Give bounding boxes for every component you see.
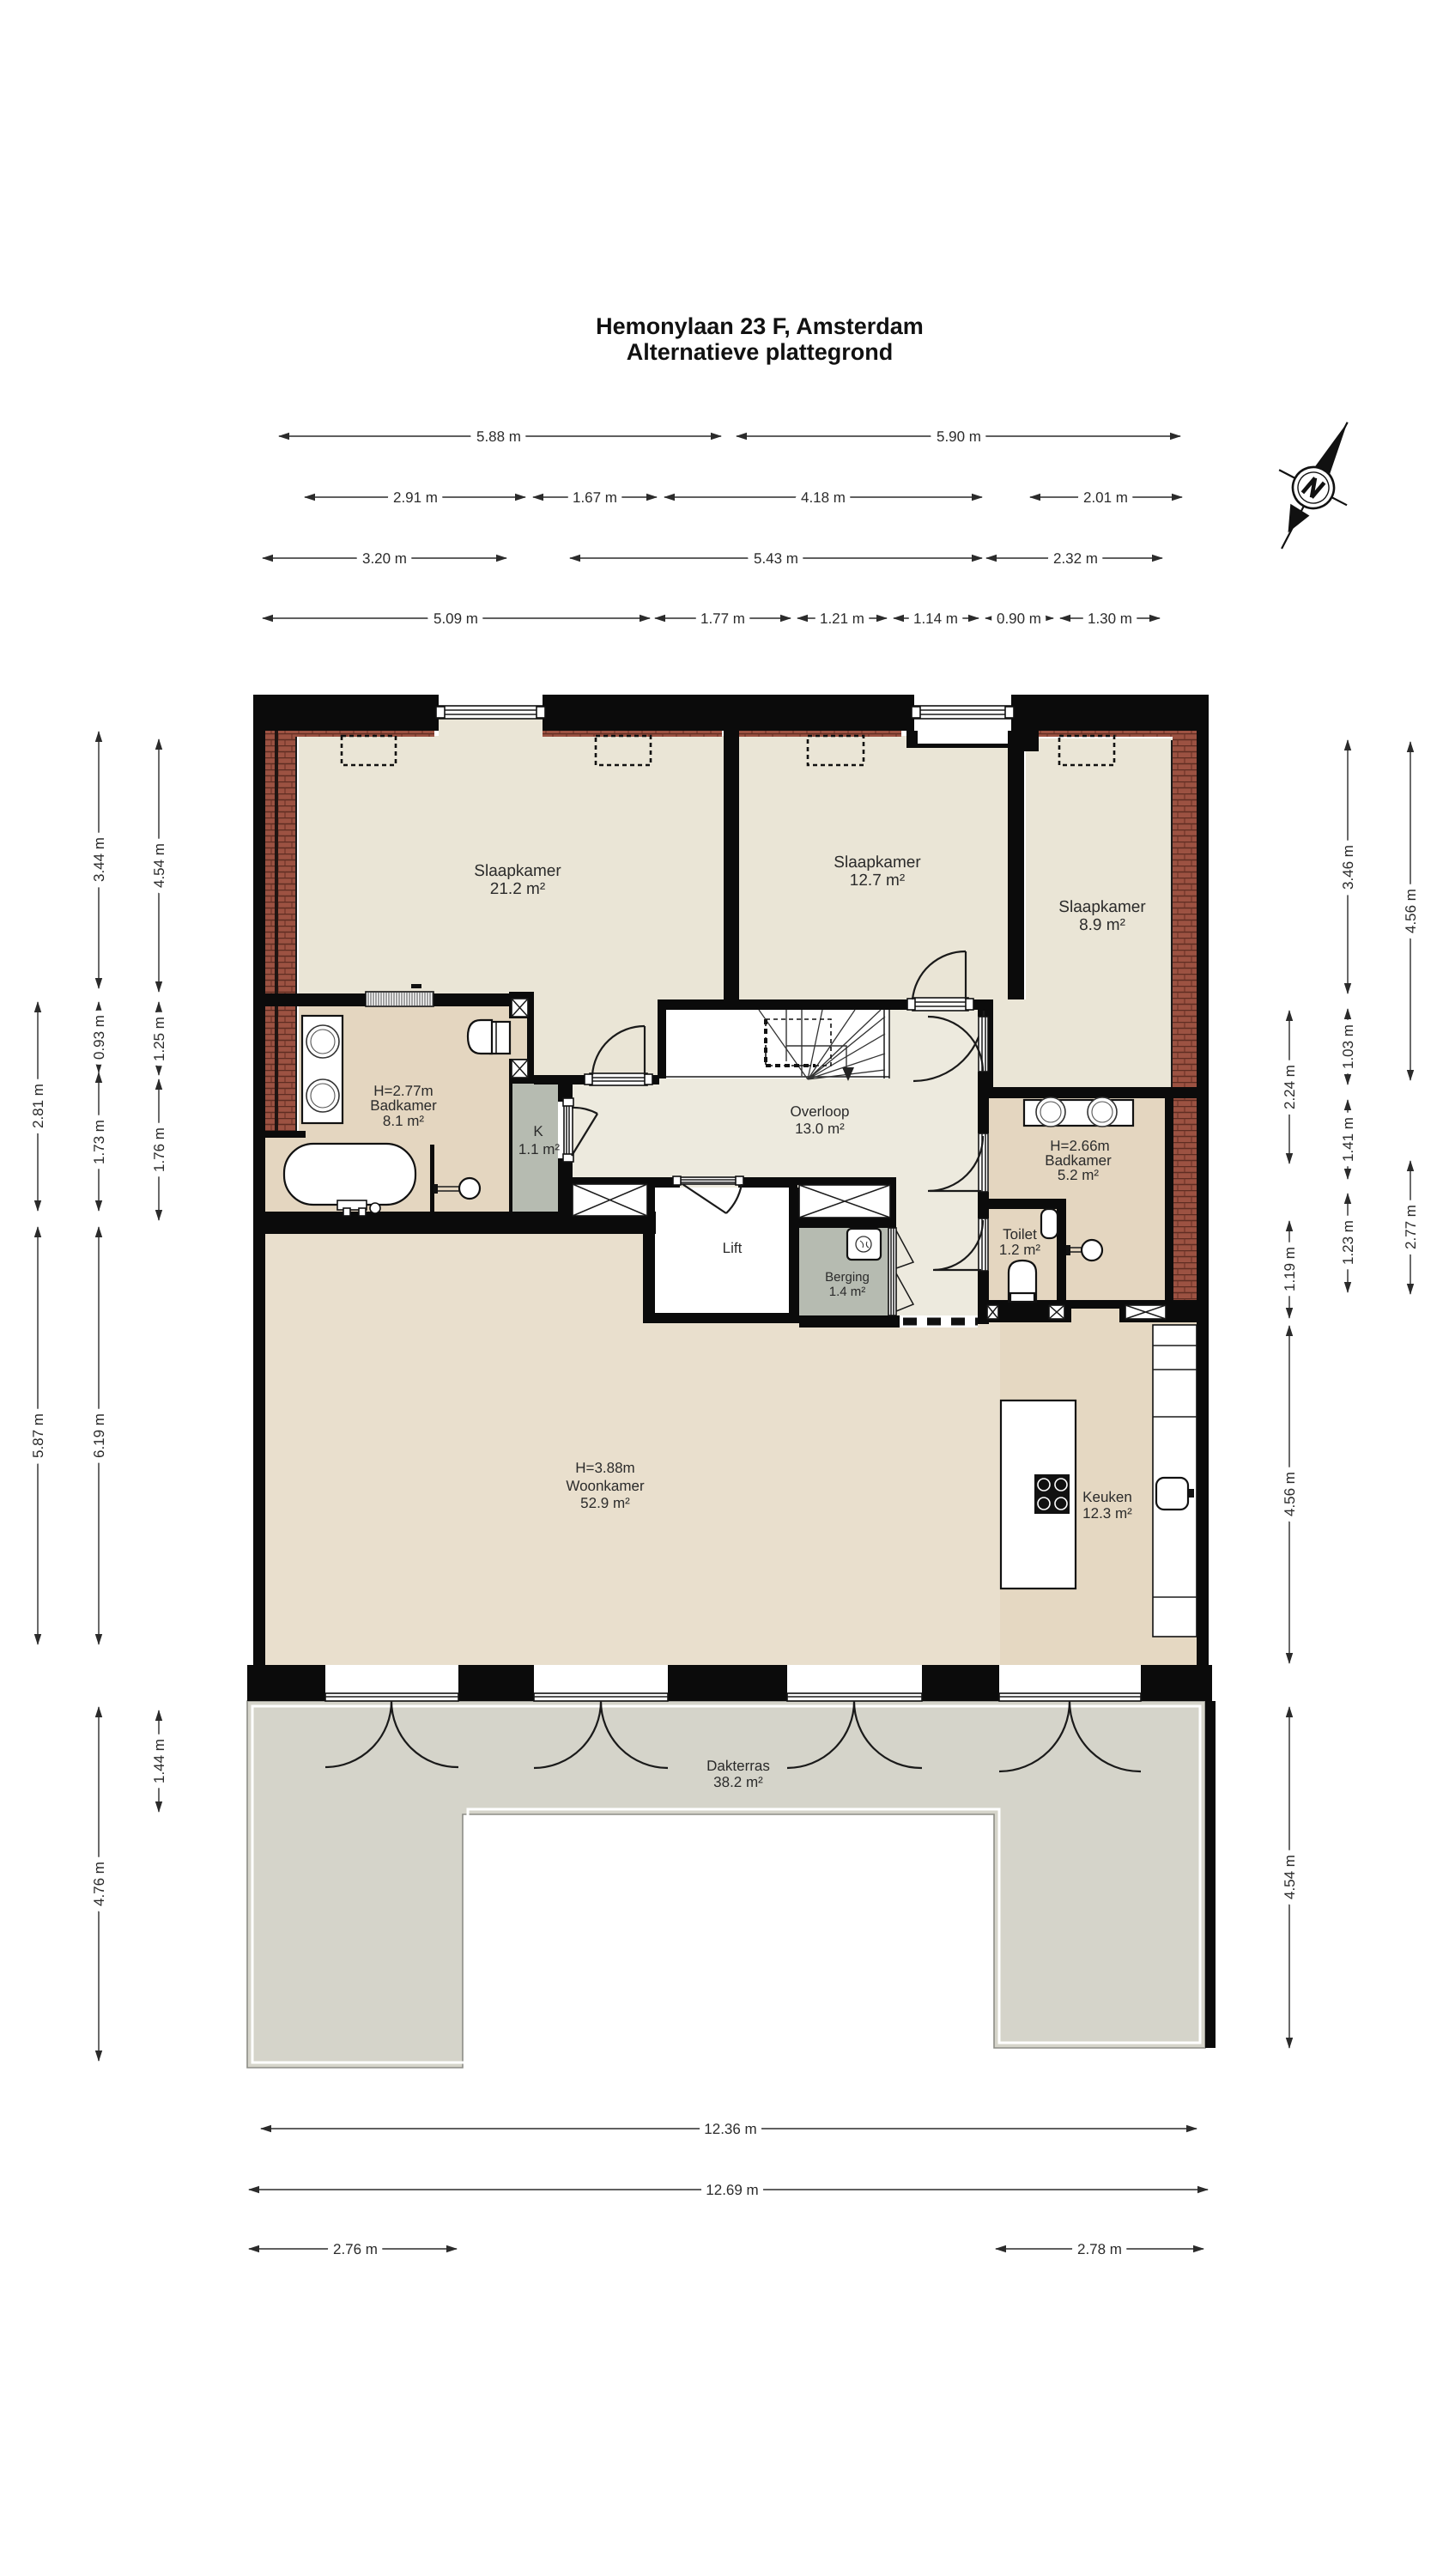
svg-text:4.18 m: 4.18 m: [801, 489, 846, 506]
svg-text:13.0 m²: 13.0 m²: [795, 1121, 845, 1137]
svg-text:0.90 m: 0.90 m: [997, 611, 1041, 627]
svg-text:5.88 m: 5.88 m: [476, 428, 521, 445]
svg-text:12.36 m: 12.36 m: [704, 2121, 756, 2137]
svg-text:2.32 m: 2.32 m: [1053, 550, 1098, 567]
svg-text:1.73 m: 1.73 m: [91, 1120, 107, 1164]
svg-text:1.21 m: 1.21 m: [820, 611, 864, 627]
svg-text:Slaapkamer: Slaapkamer: [834, 854, 921, 872]
svg-text:1.41 m: 1.41 m: [1340, 1117, 1356, 1162]
svg-text:Slaapkamer: Slaapkamer: [474, 862, 561, 880]
svg-text:2.76 m: 2.76 m: [333, 2241, 378, 2257]
svg-text:12.7 m²: 12.7 m²: [850, 872, 905, 890]
svg-text:5.90 m: 5.90 m: [937, 428, 981, 445]
svg-text:1.67 m: 1.67 m: [573, 489, 617, 506]
svg-text:2.91 m: 2.91 m: [393, 489, 438, 506]
svg-text:5.09 m: 5.09 m: [433, 611, 478, 627]
svg-text:Woonkamer: Woonkamer: [566, 1478, 645, 1494]
svg-text:Keuken: Keuken: [1082, 1489, 1132, 1505]
svg-text:Badkamer: Badkamer: [370, 1097, 437, 1114]
svg-text:K: K: [533, 1123, 543, 1139]
svg-text:1.4 m²: 1.4 m²: [829, 1285, 866, 1299]
svg-text:12.3 m²: 12.3 m²: [1082, 1505, 1132, 1522]
svg-text:3.46 m: 3.46 m: [1340, 845, 1356, 890]
svg-text:38.2 m²: 38.2 m²: [713, 1774, 763, 1790]
svg-text:2.01 m: 2.01 m: [1083, 489, 1128, 506]
svg-text:5.43 m: 5.43 m: [754, 550, 798, 567]
svg-text:21.2 m²: 21.2 m²: [490, 880, 545, 898]
svg-text:1.76 m: 1.76 m: [151, 1127, 167, 1172]
svg-text:4.56 m: 4.56 m: [1282, 1472, 1298, 1516]
svg-text:1.2 m²: 1.2 m²: [999, 1242, 1041, 1258]
svg-text:0.93 m: 0.93 m: [91, 1015, 107, 1060]
svg-text:5.2 m²: 5.2 m²: [1058, 1167, 1100, 1183]
svg-text:2.24 m: 2.24 m: [1282, 1065, 1298, 1109]
svg-text:Hemonylaan 23 F, Amsterdam: Hemonylaan 23 F, Amsterdam: [596, 313, 924, 339]
svg-text:8.1 m²: 8.1 m²: [383, 1113, 425, 1129]
svg-text:4.56 m: 4.56 m: [1403, 889, 1419, 933]
svg-text:12.69 m: 12.69 m: [706, 2182, 758, 2198]
svg-text:Overloop: Overloop: [791, 1103, 850, 1120]
svg-text:Berging: Berging: [825, 1270, 870, 1285]
svg-text:2.78 m: 2.78 m: [1077, 2241, 1122, 2257]
svg-text:4.54 m: 4.54 m: [151, 843, 167, 888]
svg-text:2.77 m: 2.77 m: [1403, 1205, 1419, 1249]
svg-text:8.9 m²: 8.9 m²: [1079, 916, 1125, 934]
svg-text:1.1 m²: 1.1 m²: [518, 1141, 561, 1157]
svg-text:1.25 m: 1.25 m: [151, 1017, 167, 1061]
svg-text:1.03 m: 1.03 m: [1340, 1024, 1356, 1069]
svg-text:Lift: Lift: [723, 1240, 743, 1256]
svg-text:4.76 m: 4.76 m: [91, 1862, 107, 1906]
svg-text:Toilet: Toilet: [1003, 1226, 1037, 1242]
svg-text:H=3.88m: H=3.88m: [575, 1460, 634, 1476]
svg-text:Slaapkamer: Slaapkamer: [1058, 898, 1146, 916]
svg-text:1.19 m: 1.19 m: [1282, 1247, 1298, 1291]
svg-text:2.81 m: 2.81 m: [30, 1084, 46, 1128]
svg-text:1.14 m: 1.14 m: [913, 611, 958, 627]
svg-text:5.87 m: 5.87 m: [30, 1413, 46, 1458]
svg-text:52.9 m²: 52.9 m²: [580, 1495, 630, 1511]
svg-text:1.23 m: 1.23 m: [1340, 1220, 1356, 1265]
svg-text:1.30 m: 1.30 m: [1088, 611, 1132, 627]
svg-text:3.20 m: 3.20 m: [362, 550, 407, 567]
svg-text:6.19 m: 6.19 m: [91, 1413, 107, 1458]
svg-text:4.54 m: 4.54 m: [1282, 1855, 1298, 1899]
svg-text:1.77 m: 1.77 m: [700, 611, 745, 627]
svg-text:Alternatieve plattegrond: Alternatieve plattegrond: [627, 339, 894, 365]
svg-text:1.44 m: 1.44 m: [151, 1739, 167, 1783]
svg-text:3.44 m: 3.44 m: [91, 837, 107, 882]
svg-text:Dakterras: Dakterras: [706, 1758, 770, 1774]
